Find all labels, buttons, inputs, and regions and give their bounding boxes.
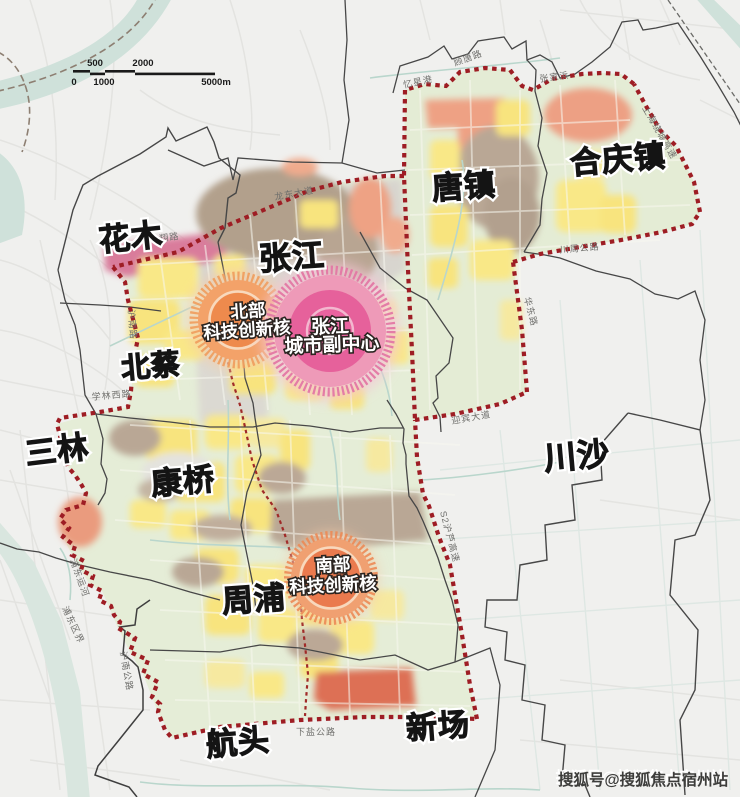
svg-text:搜狐号@搜狐焦点宿州站: 搜狐号@搜狐焦点宿州站 <box>558 770 729 789</box>
svg-text:0: 0 <box>71 77 76 88</box>
svg-text:新场: 新场 <box>405 707 471 746</box>
svg-text:5000m: 5000m <box>201 77 231 88</box>
svg-text:500: 500 <box>87 58 103 69</box>
svg-text:花木: 花木 <box>97 217 164 258</box>
svg-text:2000: 2000 <box>132 58 153 69</box>
svg-text:下盐公路: 下盐公路 <box>296 726 336 737</box>
svg-text:周浦: 周浦 <box>221 580 287 619</box>
svg-text:张江: 张江 <box>258 237 326 278</box>
svg-text:唐镇: 唐镇 <box>431 167 497 206</box>
svg-text:1000: 1000 <box>93 77 114 88</box>
svg-text:康桥: 康桥 <box>150 461 217 501</box>
svg-text:城市副中心: 城市副中心 <box>284 331 380 357</box>
svg-text:航头: 航头 <box>205 722 272 762</box>
svg-text:川沙: 川沙 <box>543 435 612 477</box>
svg-text:南部: 南部 <box>315 554 351 576</box>
svg-text:北蔡: 北蔡 <box>120 347 183 385</box>
